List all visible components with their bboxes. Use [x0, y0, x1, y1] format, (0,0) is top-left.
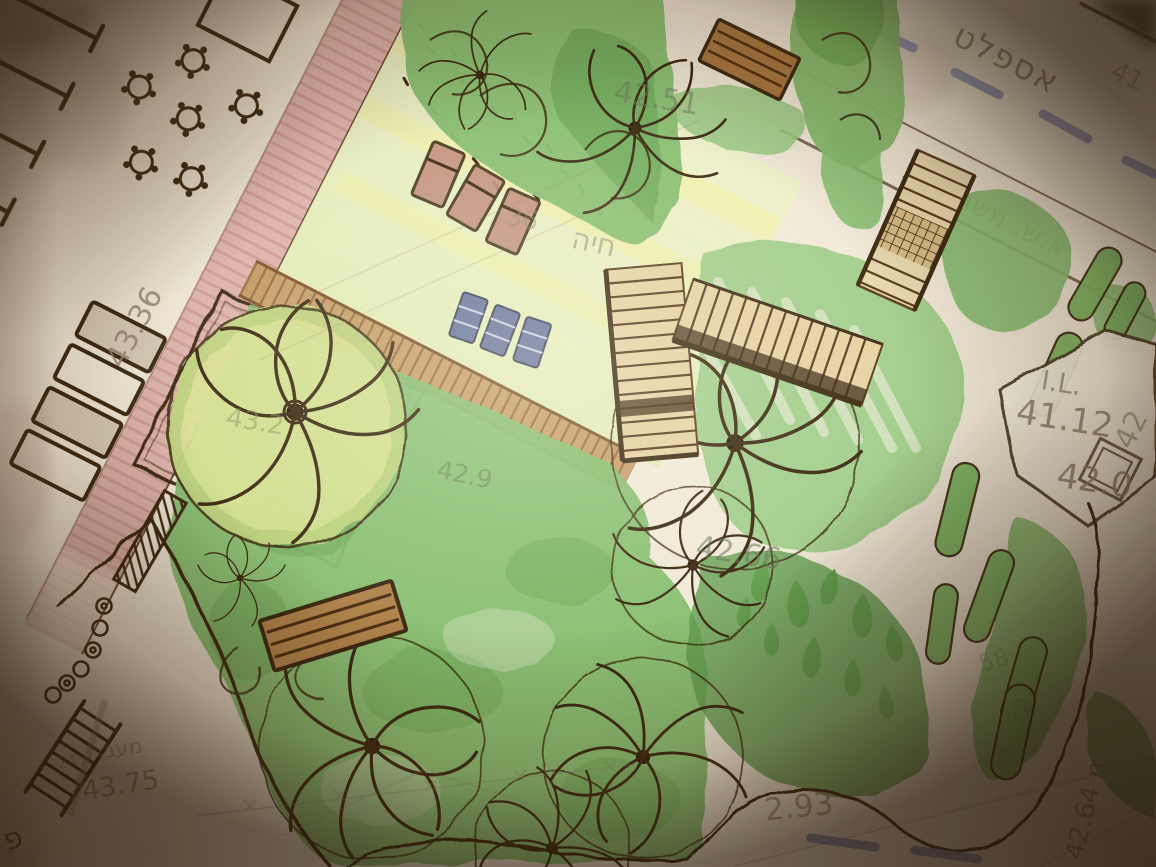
elevation-label: 24: [56, 751, 79, 773]
survey-il-mark: I.L.: [1039, 365, 1084, 402]
elevation-label: 2.93: [763, 786, 835, 829]
site-plan-drawing: אספלט א.ש. משתלבות: [0, 0, 1156, 867]
elevation-label: 36: [504, 202, 540, 236]
sketch-photo: אספלט א.ש. משתלבות: [0, 0, 1156, 867]
